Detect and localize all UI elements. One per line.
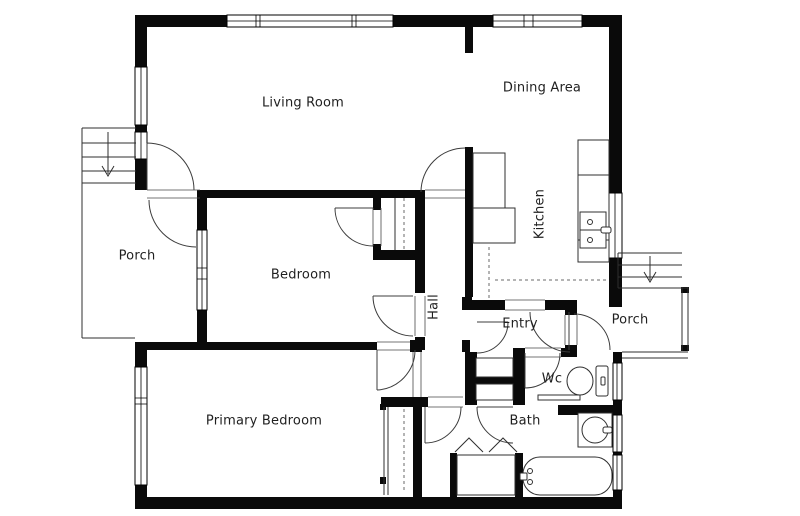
- room-label-primary-bedroom: Primary Bedroom: [206, 414, 322, 429]
- bath-door-swing: [425, 407, 461, 443]
- kitchen-window-east: [609, 193, 622, 258]
- room-label-bath: Bath: [509, 414, 540, 429]
- toilet: [567, 366, 608, 396]
- stairs-down-arrow-icon: [102, 132, 114, 176]
- bathtub: [520, 457, 612, 495]
- bifold-doors-icon: [455, 438, 517, 452]
- wc-window-east: [613, 363, 622, 400]
- bathroom-sink-vanity: [578, 413, 612, 447]
- front-screen-door-swing: [574, 314, 610, 350]
- room-label-hall: Hall: [427, 294, 442, 320]
- bedroom-closet-door-swing: [335, 208, 373, 246]
- room-label-wc: Wc: [542, 372, 562, 387]
- primary-bedroom-door-swing: [377, 350, 415, 390]
- room-label-bedroom: Bedroom: [271, 268, 331, 283]
- bath-closet-door-swing: [477, 407, 513, 443]
- room-label-porch-right: Porch: [612, 313, 649, 328]
- kitchen-sink: [580, 212, 611, 248]
- right-porch-outline: [618, 253, 688, 358]
- stairs-down-arrow-icon: [644, 256, 656, 282]
- left-porch-stairs: [82, 132, 136, 183]
- wc-basin: [538, 395, 580, 400]
- room-label-living-room: Living Room: [262, 96, 344, 111]
- bath-windows-east: [613, 415, 622, 490]
- room-label-entry: Entry: [502, 317, 538, 332]
- bedroom-window-west: [197, 230, 207, 310]
- living-room-windows-west: [135, 67, 147, 159]
- left-porch-outline: [82, 128, 136, 338]
- living-room-window-north: [227, 15, 393, 27]
- porch-screen-door-swing: [149, 200, 196, 247]
- porch-edge-south: [622, 352, 688, 358]
- room-label-porch-left: Porch: [119, 249, 156, 264]
- living-hall-door-swing: [421, 148, 465, 192]
- room-label-kitchen: Kitchen: [533, 189, 548, 239]
- bedroom-closet: [395, 198, 404, 250]
- bath-linen-closet: [455, 438, 517, 495]
- floor-plan: Living Room Dining Area Kitchen Porch Be…: [0, 0, 800, 516]
- primary-bedroom-window-west: [135, 367, 147, 485]
- room-label-dining-area: Dining Area: [503, 81, 581, 96]
- dining-window-north: [493, 15, 582, 27]
- porch-door-swing: [147, 143, 194, 190]
- bedroom-door-swing: [373, 296, 413, 336]
- porch-railing-east: [682, 287, 688, 351]
- primary-bedroom-closet: [384, 407, 404, 495]
- right-porch-stairs: [618, 256, 682, 282]
